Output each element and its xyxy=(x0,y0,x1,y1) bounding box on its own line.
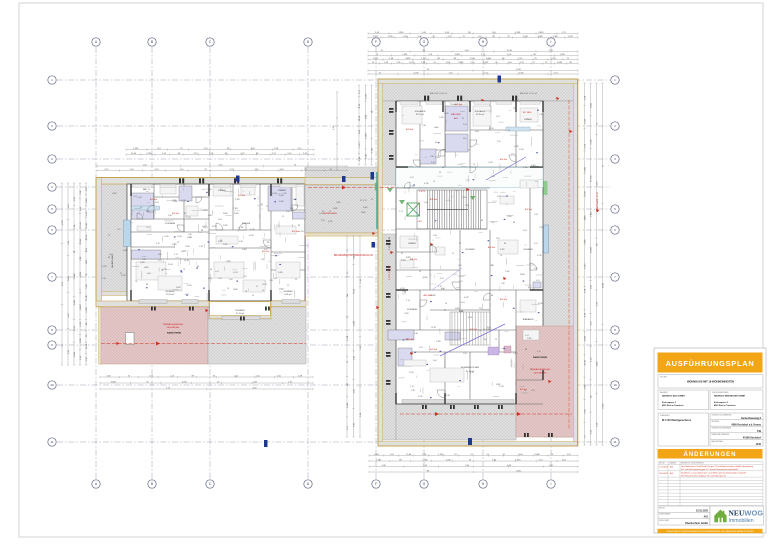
svg-text:4,235: 4,235 xyxy=(182,381,188,383)
svg-text:11: 11 xyxy=(613,440,616,444)
svg-text:WOHNHAUS MIT 18 WOHNEINHEITEN: WOHNHAUS MIT 18 WOHNEINHEITEN xyxy=(687,380,734,384)
svg-text:ÄNDERUNGEN: ÄNDERUNGEN xyxy=(683,451,736,458)
svg-text:3,885: 3,885 xyxy=(363,207,368,209)
svg-text:3,885: 3,885 xyxy=(584,215,586,221)
svg-text:SCHLAFEN: SCHLAFEN xyxy=(475,110,486,113)
svg-text:3,885: 3,885 xyxy=(74,351,76,357)
svg-text:1,01: 1,01 xyxy=(458,265,462,267)
svg-text:3,885: 3,885 xyxy=(144,267,149,269)
svg-text:2,74: 2,74 xyxy=(363,200,367,202)
svg-text:2,385: 2,385 xyxy=(336,202,341,204)
svg-text:2,74: 2,74 xyxy=(523,319,527,321)
svg-text:76: 76 xyxy=(500,255,502,257)
svg-text:ZIMMER: ZIMMER xyxy=(278,190,286,192)
svg-text:4,235: 4,235 xyxy=(102,266,107,268)
svg-text:5,48: 5,48 xyxy=(431,162,435,164)
svg-text:1,245: 1,245 xyxy=(519,149,524,151)
svg-text:4,235: 4,235 xyxy=(299,231,304,233)
svg-text:1,38: 1,38 xyxy=(491,176,495,178)
svg-text:4,235: 4,235 xyxy=(328,221,333,223)
svg-text:2,10: 2,10 xyxy=(497,141,501,143)
svg-text:1,38: 1,38 xyxy=(102,278,106,280)
svg-text:1,245: 1,245 xyxy=(164,236,169,238)
svg-text:74: 74 xyxy=(262,290,264,292)
svg-text:1,01: 1,01 xyxy=(146,227,150,229)
svg-text:1,985: 1,985 xyxy=(226,261,231,263)
svg-text:25: 25 xyxy=(452,253,454,255)
svg-text:76: 76 xyxy=(183,269,185,271)
svg-text:15,48: 15,48 xyxy=(80,222,82,228)
svg-text:VORRAUM: VORRAUM xyxy=(165,222,176,225)
svg-text:1,985: 1,985 xyxy=(223,225,228,227)
svg-text:2,385: 2,385 xyxy=(398,32,404,34)
svg-text:3,885: 3,885 xyxy=(68,275,70,281)
svg-text:4,235: 4,235 xyxy=(519,72,525,74)
svg-text:A01 Bad: A01 Bad xyxy=(488,246,495,249)
svg-text:25: 25 xyxy=(148,189,150,191)
svg-text:1,38: 1,38 xyxy=(531,390,535,392)
svg-text:4,235: 4,235 xyxy=(464,297,469,299)
svg-text:2,74: 2,74 xyxy=(459,281,463,283)
svg-text:1,01: 1,01 xyxy=(536,280,540,282)
svg-text:25: 25 xyxy=(252,295,254,297)
svg-text:15,48: 15,48 xyxy=(168,264,173,266)
svg-text:ZIMMER: ZIMMER xyxy=(408,243,416,245)
svg-text:4,235: 4,235 xyxy=(187,285,192,287)
svg-text:3,64: 3,64 xyxy=(459,311,463,313)
svg-text:25: 25 xyxy=(462,118,464,120)
svg-text:Neue Badezimmer Zuteil Wand 12: Neue Badezimmer Zuteil Wand 12m gem. TÜ … xyxy=(681,465,753,468)
svg-text:25: 25 xyxy=(282,216,284,218)
svg-text:25: 25 xyxy=(459,243,461,245)
svg-text:WOHNEN: WOHNEN xyxy=(523,249,533,251)
svg-text:Kirchengasse 3: Kirchengasse 3 xyxy=(714,402,728,404)
svg-text:A01 Bad: A01 Bad xyxy=(150,198,157,201)
svg-text:5,48: 5,48 xyxy=(188,234,192,236)
svg-text:1,245: 1,245 xyxy=(409,62,415,64)
svg-text:2,385: 2,385 xyxy=(365,153,367,159)
svg-text:40108 Kirchdorf: 40108 Kirchdorf xyxy=(743,437,761,440)
svg-text:A01 Bad: A01 Bad xyxy=(455,103,462,106)
svg-text:4,235: 4,235 xyxy=(418,396,423,398)
svg-text:15,48: 15,48 xyxy=(523,36,529,38)
svg-text:4,235: 4,235 xyxy=(537,255,542,257)
svg-text:76: 76 xyxy=(530,369,532,371)
svg-text:WOHNEN: WOHNEN xyxy=(283,291,293,293)
svg-text:2,385: 2,385 xyxy=(483,62,489,64)
svg-text:A01 Bad: A01 Bad xyxy=(172,212,179,215)
svg-text:74: 74 xyxy=(473,164,475,166)
svg-text:TERRASSENBELAG: TERRASSENBELAG xyxy=(163,323,184,326)
svg-text:BRANDWAND EI 90: BRANDWAND EI 90 xyxy=(596,191,599,212)
svg-text:15,48: 15,48 xyxy=(359,115,361,121)
svg-text:1,985: 1,985 xyxy=(505,271,510,273)
svg-text:1,985: 1,985 xyxy=(560,54,566,56)
svg-text:A01 Bad: A01 Bad xyxy=(525,208,532,211)
svg-text:LIFT: LIFT xyxy=(418,221,423,223)
svg-text:1,245: 1,245 xyxy=(186,217,191,219)
svg-text:1,50: 1,50 xyxy=(483,339,487,341)
svg-text:1,245: 1,245 xyxy=(177,236,182,238)
svg-text:2,385: 2,385 xyxy=(365,133,367,139)
svg-text:A01: A01 xyxy=(704,516,709,519)
svg-text:2,385: 2,385 xyxy=(233,208,238,210)
svg-text:A01 Bad: A01 Bad xyxy=(292,230,299,233)
svg-text:74: 74 xyxy=(108,235,110,237)
svg-text:2,385: 2,385 xyxy=(527,338,532,340)
svg-text:14.04.2025: 14.04.2025 xyxy=(659,473,668,475)
svg-text:1,38: 1,38 xyxy=(501,283,505,285)
svg-text:2,385: 2,385 xyxy=(235,199,240,201)
svg-text:88: 88 xyxy=(210,269,212,271)
svg-text:25: 25 xyxy=(189,237,191,239)
svg-text:25: 25 xyxy=(140,207,142,209)
svg-text:88: 88 xyxy=(108,257,110,259)
svg-text:2,385: 2,385 xyxy=(80,238,82,244)
svg-text:1,01: 1,01 xyxy=(117,229,121,231)
svg-text:25: 25 xyxy=(419,271,421,273)
svg-text:2,74: 2,74 xyxy=(174,254,178,256)
svg-text:4,235: 4,235 xyxy=(272,193,277,195)
svg-text:2,385: 2,385 xyxy=(486,329,491,331)
svg-text:1,01: 1,01 xyxy=(534,268,538,270)
svg-text:25: 25 xyxy=(483,329,485,331)
svg-text:3,885: 3,885 xyxy=(361,212,366,214)
svg-text:3,885: 3,885 xyxy=(538,32,544,34)
svg-text:1,985: 1,985 xyxy=(539,227,544,229)
svg-text:1,245: 1,245 xyxy=(551,58,557,60)
svg-text:25: 25 xyxy=(439,172,441,174)
svg-text:A01: A01 xyxy=(670,466,673,469)
svg-text:1,38: 1,38 xyxy=(411,390,415,392)
svg-text:5,48: 5,48 xyxy=(424,202,428,204)
svg-text:1,985: 1,985 xyxy=(86,222,88,228)
svg-text:4,235: 4,235 xyxy=(181,200,186,202)
svg-text:25: 25 xyxy=(406,339,408,341)
svg-text:1,01: 1,01 xyxy=(525,335,529,337)
svg-text:A01 Bad: A01 Bad xyxy=(470,328,477,331)
svg-text:2,10: 2,10 xyxy=(321,220,325,222)
svg-text:1,985: 1,985 xyxy=(80,337,82,343)
svg-text:5,48: 5,48 xyxy=(168,215,172,217)
svg-text:1910: 1910 xyxy=(756,443,762,446)
svg-text:3,885: 3,885 xyxy=(584,335,586,341)
svg-text:1,01: 1,01 xyxy=(158,260,162,262)
svg-text:2,10: 2,10 xyxy=(406,300,410,302)
svg-text:74: 74 xyxy=(266,206,268,208)
svg-text:3,64: 3,64 xyxy=(158,254,162,256)
svg-text:1,245: 1,245 xyxy=(347,335,349,341)
svg-text:BALKON 10,15 m2: BALKON 10,15 m2 xyxy=(520,92,538,95)
svg-text:VORRAUM: VORRAUM xyxy=(407,308,418,311)
svg-text:Kirchengasse 3: Kirchengasse 3 xyxy=(662,402,676,404)
svg-text:1,38: 1,38 xyxy=(199,246,203,248)
svg-text:1,245: 1,245 xyxy=(203,227,208,229)
svg-text:15,48: 15,48 xyxy=(131,153,137,155)
svg-text:4551 Ried im Traunkreis: 4551 Ried im Traunkreis xyxy=(714,404,736,407)
svg-text:1,985: 1,985 xyxy=(553,36,559,38)
svg-text:ST,25 m2: ST,25 m2 xyxy=(416,114,425,116)
svg-text:1,01: 1,01 xyxy=(133,196,137,198)
svg-text:15,48: 15,48 xyxy=(86,234,88,240)
svg-text:4,235: 4,235 xyxy=(62,219,64,225)
svg-text:1,245: 1,245 xyxy=(409,372,414,374)
svg-text:1,985: 1,985 xyxy=(133,148,139,150)
svg-text:3,885: 3,885 xyxy=(111,381,117,383)
svg-text:1,245: 1,245 xyxy=(137,197,142,199)
svg-text:I: I xyxy=(551,40,552,44)
svg-text:1,38: 1,38 xyxy=(269,280,273,282)
svg-text:27,65 m2: 27,65 m2 xyxy=(166,294,175,296)
svg-text:A01 Bad: A01 Bad xyxy=(238,194,245,197)
svg-text:2,74: 2,74 xyxy=(410,386,414,388)
svg-text:4,235: 4,235 xyxy=(233,272,238,274)
svg-text:2,385: 2,385 xyxy=(422,459,428,461)
svg-text:Oberlerchner GmbH: Oberlerchner GmbH xyxy=(685,522,708,525)
svg-text:549: 549 xyxy=(757,430,762,433)
svg-text:4,235: 4,235 xyxy=(538,303,543,305)
svg-text:2,10: 2,10 xyxy=(537,351,541,353)
svg-text:4,235: 4,235 xyxy=(584,239,586,245)
svg-text:2,385: 2,385 xyxy=(436,341,441,343)
svg-text:5,48: 5,48 xyxy=(208,215,212,217)
svg-text:76: 76 xyxy=(135,281,137,283)
svg-text:1,50: 1,50 xyxy=(435,127,439,129)
svg-text:2,385: 2,385 xyxy=(223,244,228,246)
svg-text:F: F xyxy=(375,40,377,44)
svg-text:1,50: 1,50 xyxy=(402,291,406,293)
svg-text:2,385: 2,385 xyxy=(523,167,528,169)
svg-text:GEH-BELAG: GEH-BELAG xyxy=(167,326,180,329)
svg-text:74: 74 xyxy=(329,211,331,213)
svg-text:3,64: 3,64 xyxy=(475,131,479,133)
svg-text:4551 Ried im Traunkreis: 4551 Ried im Traunkreis xyxy=(662,404,684,407)
svg-text:1,38: 1,38 xyxy=(142,259,146,261)
svg-text:1,245: 1,245 xyxy=(568,36,574,38)
svg-text:25: 25 xyxy=(287,285,289,287)
svg-text:A01 Bad: A01 Bad xyxy=(500,158,507,161)
svg-text:3,885: 3,885 xyxy=(123,250,128,252)
svg-text:3,885: 3,885 xyxy=(181,251,186,253)
svg-text:5 STG 17,5/28: 5 STG 17,5/28 xyxy=(389,265,391,280)
svg-text:1,985: 1,985 xyxy=(373,58,379,60)
svg-text:1,985: 1,985 xyxy=(439,117,444,119)
svg-text:WOHNEN: WOHNEN xyxy=(235,310,245,312)
svg-text:1,50: 1,50 xyxy=(463,353,467,355)
svg-text:11: 11 xyxy=(50,440,53,444)
svg-text:2,385: 2,385 xyxy=(515,32,521,34)
svg-text:4,235: 4,235 xyxy=(86,307,88,313)
svg-text:1,38: 1,38 xyxy=(497,196,501,198)
svg-text:25: 25 xyxy=(444,310,446,312)
svg-text:3,885: 3,885 xyxy=(520,274,525,276)
svg-text:G: G xyxy=(423,40,426,44)
svg-text:3,64: 3,64 xyxy=(441,288,445,290)
svg-text:1,985: 1,985 xyxy=(112,193,117,195)
svg-text:25: 25 xyxy=(495,339,497,341)
svg-text:1,245: 1,245 xyxy=(403,36,409,38)
svg-text:1,38: 1,38 xyxy=(279,289,283,291)
svg-text:1,38: 1,38 xyxy=(422,125,426,127)
svg-text:2,385: 2,385 xyxy=(376,459,382,461)
svg-text:25: 25 xyxy=(435,142,437,144)
svg-text:74: 74 xyxy=(227,288,229,290)
svg-text:1,985: 1,985 xyxy=(185,246,190,248)
svg-text:3,885: 3,885 xyxy=(401,260,406,262)
svg-text:4,235: 4,235 xyxy=(249,235,254,237)
svg-text:3,885: 3,885 xyxy=(496,384,501,386)
svg-text:G: G xyxy=(423,482,426,486)
svg-text:4,235: 4,235 xyxy=(80,321,82,327)
svg-text:88: 88 xyxy=(201,230,203,232)
svg-text:1,985: 1,985 xyxy=(515,459,521,461)
svg-text:3,885: 3,885 xyxy=(602,282,604,288)
svg-text:1,01: 1,01 xyxy=(479,308,483,310)
svg-text:1,38: 1,38 xyxy=(414,333,418,335)
svg-text:2,74: 2,74 xyxy=(534,243,538,245)
svg-text:WOHNEN: WOHNEN xyxy=(465,249,475,251)
svg-text:3,64: 3,64 xyxy=(147,273,151,275)
svg-text:GEH-BELAG: GEH-BELAG xyxy=(534,372,547,375)
svg-text:74: 74 xyxy=(120,273,122,275)
svg-text:2,74: 2,74 xyxy=(440,278,444,280)
svg-text:1,245: 1,245 xyxy=(74,325,76,331)
svg-text:2,74: 2,74 xyxy=(410,186,414,188)
svg-text:3,885: 3,885 xyxy=(590,102,592,108)
svg-text:1,245: 1,245 xyxy=(388,36,394,38)
svg-text:DIESER PLAN IST GEISTIGES EIGE: DIESER PLAN IST GEISTIGES EIGENTUM DES P… xyxy=(667,530,754,533)
svg-text:25: 25 xyxy=(177,242,179,244)
svg-text:3,885: 3,885 xyxy=(279,201,284,203)
svg-text:15,48: 15,48 xyxy=(262,284,267,286)
svg-text:1,50: 1,50 xyxy=(496,238,500,240)
svg-text:1,50: 1,50 xyxy=(496,116,500,118)
svg-text:4,235: 4,235 xyxy=(424,183,429,185)
svg-text:I: I xyxy=(551,482,552,486)
svg-text:3,885: 3,885 xyxy=(596,361,598,367)
svg-text:1,245: 1,245 xyxy=(507,216,512,218)
svg-text:2,10: 2,10 xyxy=(156,243,160,245)
svg-text:3,885: 3,885 xyxy=(223,213,228,215)
svg-text:2,385: 2,385 xyxy=(590,138,592,144)
svg-text:15,48: 15,48 xyxy=(80,271,82,277)
svg-text:ZIMMER: ZIMMER xyxy=(524,119,532,121)
svg-text:74: 74 xyxy=(508,130,510,132)
svg-text:15,48: 15,48 xyxy=(445,395,450,397)
svg-text:3,64: 3,64 xyxy=(218,219,222,221)
svg-text:4,235: 4,235 xyxy=(414,72,420,74)
svg-text:BAD NEU: BAD NEU xyxy=(451,113,461,116)
svg-text:4,235: 4,235 xyxy=(468,317,473,319)
svg-text:NEUWOG IMMOBILIEN GMBH: NEUWOG IMMOBILIEN GMBH xyxy=(714,396,746,398)
svg-text:3,885: 3,885 xyxy=(333,208,338,210)
svg-text:4,235: 4,235 xyxy=(584,190,586,196)
svg-text:1,50: 1,50 xyxy=(286,211,290,213)
svg-text:WC NEU: WC NEU xyxy=(523,112,532,114)
svg-text:1,01: 1,01 xyxy=(319,213,323,215)
svg-text:3,885: 3,885 xyxy=(538,36,544,38)
svg-text:Immobilien: Immobilien xyxy=(729,518,754,524)
svg-text:4,235: 4,235 xyxy=(365,93,367,99)
svg-text:25: 25 xyxy=(256,286,258,288)
svg-text:4560 Kirchdorf a.d. Krems: 4560 Kirchdorf a.d. Krems xyxy=(731,423,761,426)
svg-text:3,885: 3,885 xyxy=(405,58,411,60)
svg-text:3,885: 3,885 xyxy=(431,295,436,297)
svg-text:A01 Bad: A01 Bad xyxy=(520,388,527,391)
svg-text:A01 Bad: A01 Bad xyxy=(410,258,417,261)
svg-text:3,885: 3,885 xyxy=(557,62,563,64)
svg-text:1,38: 1,38 xyxy=(539,114,543,116)
svg-text:A01 Bad: A01 Bad xyxy=(430,198,437,201)
svg-text:3,64: 3,64 xyxy=(523,230,527,232)
svg-text:KUECHE: KUECHE xyxy=(242,223,251,225)
svg-text:3,885: 3,885 xyxy=(458,62,464,64)
svg-text:4,235: 4,235 xyxy=(208,278,213,280)
svg-text:1,245: 1,245 xyxy=(516,69,522,71)
svg-text:2,385: 2,385 xyxy=(172,200,177,202)
svg-text:Stg Wärme- u.Lüg schächte gem.: Stg Wärme- u.Lüg schächte gem. neue Elek… xyxy=(681,472,747,475)
svg-text:2,385: 2,385 xyxy=(516,470,522,472)
svg-text:1,01: 1,01 xyxy=(243,276,247,278)
svg-text:1,985: 1,985 xyxy=(444,113,449,115)
svg-text:1,245: 1,245 xyxy=(438,454,444,456)
svg-text:3,885: 3,885 xyxy=(535,454,541,456)
svg-text:2,385: 2,385 xyxy=(584,166,586,172)
svg-text:1,38: 1,38 xyxy=(290,208,294,210)
svg-text:1,985: 1,985 xyxy=(404,313,409,315)
svg-text:GEZEICHNET: GEZEICHNET xyxy=(659,520,669,522)
svg-text:AUSFÜHRUNGSPLAN: AUSFÜHRUNGSPLAN xyxy=(666,359,755,368)
svg-text:3,885: 3,885 xyxy=(279,195,284,197)
svg-text:PROJEKT: PROJEKT xyxy=(660,377,667,379)
svg-text:1,985: 1,985 xyxy=(347,402,349,408)
svg-text:2,74: 2,74 xyxy=(490,265,494,267)
svg-text:25: 25 xyxy=(360,200,362,202)
svg-text:2,385: 2,385 xyxy=(86,198,88,204)
svg-text:3,885: 3,885 xyxy=(74,273,76,279)
svg-text:3,885: 3,885 xyxy=(278,272,283,274)
svg-text:2,385: 2,385 xyxy=(513,353,518,355)
svg-text:1,245: 1,245 xyxy=(488,162,493,164)
svg-text:2,74: 2,74 xyxy=(410,177,414,179)
svg-text:1,01: 1,01 xyxy=(109,254,113,256)
svg-text:2,385: 2,385 xyxy=(514,146,519,148)
svg-text:1,50: 1,50 xyxy=(146,211,150,213)
svg-text:88: 88 xyxy=(184,213,186,215)
svg-text:1,50: 1,50 xyxy=(229,279,233,281)
svg-text:15,48: 15,48 xyxy=(406,454,412,456)
svg-text:A02: A02 xyxy=(670,472,673,475)
svg-text:15,48: 15,48 xyxy=(431,327,436,329)
svg-text:1,985: 1,985 xyxy=(402,54,408,56)
svg-text:M 1:50 Dachgeschoss: M 1:50 Dachgeschoss xyxy=(662,418,692,422)
svg-text:15,48: 15,48 xyxy=(584,359,586,365)
svg-text:4,235: 4,235 xyxy=(470,58,476,60)
svg-text:SCHLAFEN: SCHLAFEN xyxy=(415,110,426,113)
svg-text:A01 Bad: A01 Bad xyxy=(500,298,507,301)
svg-text:88: 88 xyxy=(481,220,483,222)
svg-text:25: 25 xyxy=(295,279,297,281)
svg-text:WOHNEN: WOHNEN xyxy=(165,291,175,293)
svg-text:5 STG: 5 STG xyxy=(419,191,426,193)
svg-text:TERRASSENBELAG: TERRASSENBELAG xyxy=(530,368,551,371)
svg-text:RANDSTEINE: RANDSTEINE xyxy=(167,332,182,335)
svg-text:3,885: 3,885 xyxy=(486,58,492,60)
svg-text:A01 Bad: A01 Bad xyxy=(262,250,269,253)
svg-text:3,885: 3,885 xyxy=(233,289,238,291)
svg-text:1,38: 1,38 xyxy=(218,278,222,280)
svg-text:88: 88 xyxy=(442,167,444,169)
